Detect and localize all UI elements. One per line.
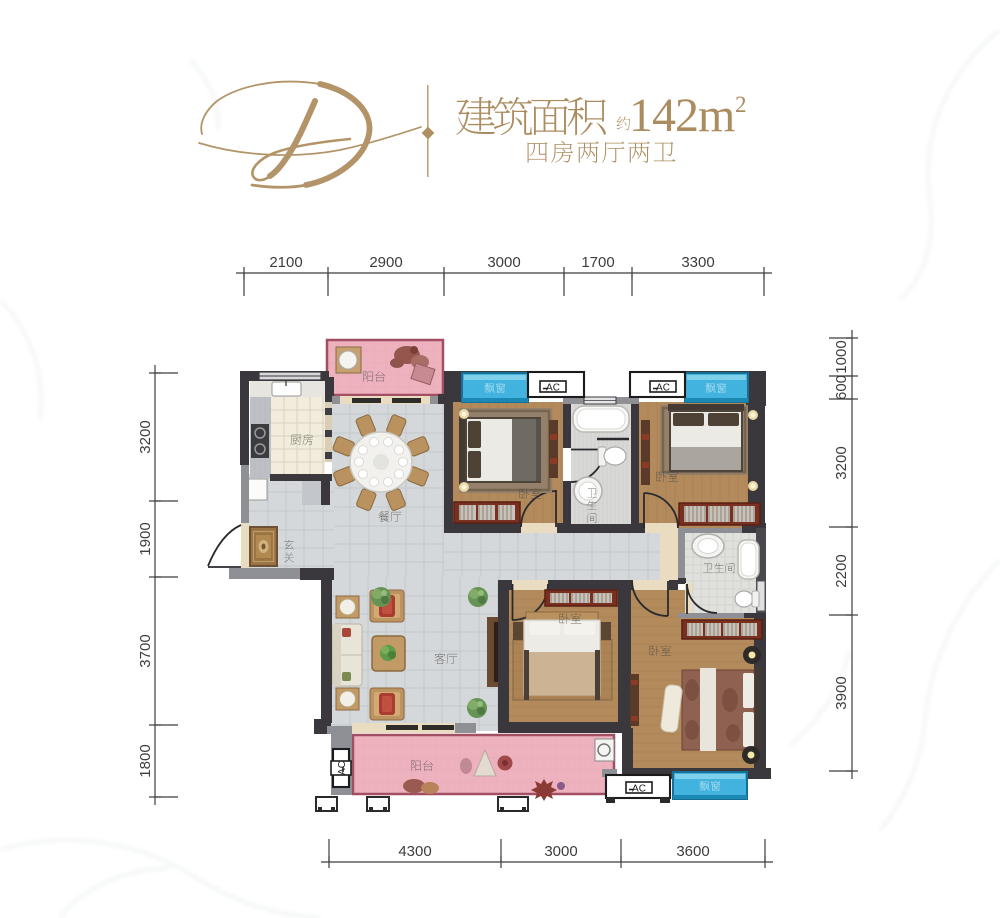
svg-text:600: 600 [833,375,850,400]
svg-text:1800: 1800 [137,744,154,777]
svg-text:AC: AC [546,383,560,394]
svg-text:3300: 3300 [681,254,714,271]
svg-text:1000: 1000 [833,340,850,373]
svg-text:3000: 3000 [544,843,577,860]
svg-text:3900: 3900 [833,676,850,709]
svg-text:2200: 2200 [833,554,850,587]
svg-text:3000: 3000 [487,254,520,271]
svg-text:2900: 2900 [369,254,402,271]
svg-text:AC: AC [656,383,670,394]
svg-text:142m: 142m [629,89,735,142]
svg-text:4300: 4300 [398,843,431,860]
svg-text:3700: 3700 [137,634,154,667]
svg-text:1900: 1900 [137,522,154,555]
svg-text:3200: 3200 [833,446,850,479]
svg-text:AC: AC [632,784,646,795]
svg-text:3600: 3600 [676,843,709,860]
svg-text:3200: 3200 [137,420,154,453]
svg-text:1700: 1700 [581,254,614,271]
svg-text:2100: 2100 [269,254,302,271]
svg-text:2: 2 [735,92,747,117]
